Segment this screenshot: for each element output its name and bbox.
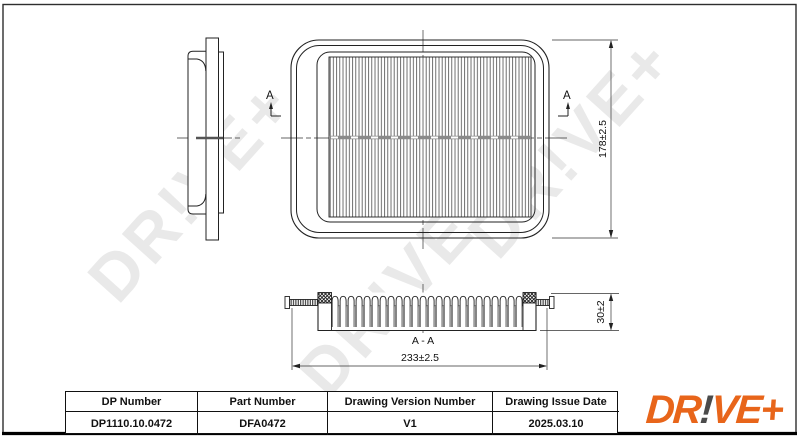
table-value-part-number: DFA0472 bbox=[198, 412, 328, 435]
dim-arrow-icon bbox=[539, 364, 547, 368]
section-tab-left bbox=[285, 297, 318, 309]
logo-text-suffix: VE+ bbox=[710, 388, 784, 433]
table-header-drawing-version: Drawing Version Number bbox=[328, 392, 493, 412]
dim-arrow-icon bbox=[609, 230, 613, 238]
table-value-issue-date: 2025.03.10 bbox=[493, 412, 619, 435]
dim-height-label: 178±2.5 bbox=[597, 120, 609, 158]
table-header-dp-number: DP Number bbox=[66, 392, 198, 412]
dim-arrow-icon bbox=[609, 323, 613, 331]
air-filter-technical-drawing-page: DR!VE+ DR!VE+ DR!VE+ bbox=[0, 0, 800, 436]
section-endcap-right bbox=[523, 293, 536, 304]
table-header-issue-date: Drawing Issue Date bbox=[493, 392, 619, 412]
dim-arrow-icon bbox=[609, 294, 613, 302]
section-marker-left-label: A bbox=[266, 90, 274, 102]
title-block-table: DP Number Part Number Drawing Version Nu… bbox=[65, 391, 618, 434]
table-value-drawing-version: V1 bbox=[328, 412, 493, 435]
section-tab-right bbox=[536, 297, 554, 309]
dim-thickness-label: 30±2 bbox=[595, 300, 607, 323]
dim-width-label: 233±2.5 bbox=[401, 352, 439, 364]
logo-text-prefix: DR bbox=[645, 388, 702, 433]
technical-drawing: DR!VE+ DR!VE+ DR!VE+ bbox=[0, 0, 800, 436]
drive-plus-logo: DR!VE+ bbox=[628, 388, 799, 432]
table-value-dp-number: DP1110.10.0472 bbox=[66, 412, 198, 435]
section-marker-right-label: A bbox=[563, 90, 571, 102]
section-pleats bbox=[332, 296, 525, 327]
side-view-body bbox=[188, 51, 206, 214]
section-title: A - A bbox=[412, 335, 434, 347]
side-view-rib bbox=[219, 52, 224, 213]
table-header-part-number: Part Number bbox=[198, 392, 328, 412]
section-endcap-left bbox=[318, 293, 332, 304]
